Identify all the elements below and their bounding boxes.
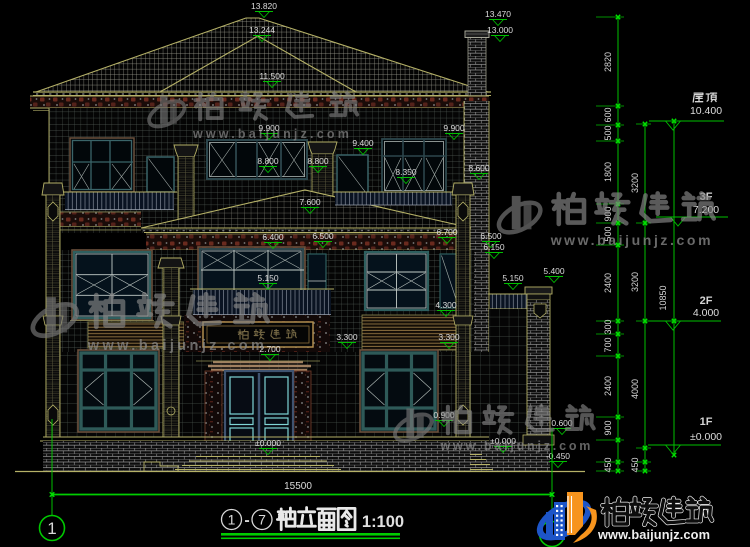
svg-text:±0.000: ±0.000 — [690, 431, 722, 443]
svg-text:7: 7 — [258, 512, 266, 528]
svg-text:450: 450 — [630, 457, 640, 472]
svg-text:4.300: 4.300 — [435, 300, 457, 310]
svg-text:10850: 10850 — [658, 285, 668, 310]
svg-text:5.400: 5.400 — [543, 266, 565, 276]
svg-text:6.500: 6.500 — [480, 231, 502, 241]
svg-text:8.350: 8.350 — [395, 167, 417, 177]
svg-text:1F: 1F — [700, 416, 713, 428]
svg-text:13.820: 13.820 — [251, 1, 277, 11]
svg-text:9.400: 9.400 — [352, 138, 374, 148]
svg-text:-: - — [244, 512, 249, 529]
svg-text:9.900: 9.900 — [443, 123, 465, 133]
svg-text:11.500: 11.500 — [259, 71, 285, 81]
svg-text:www.baijunjz.com: www.baijunjz.com — [550, 232, 713, 248]
svg-text:13.470: 13.470 — [485, 9, 511, 19]
svg-text:2400: 2400 — [603, 376, 613, 396]
svg-text:4.000: 4.000 — [693, 307, 719, 319]
svg-text:500: 500 — [603, 125, 613, 140]
svg-text:www.baijunjz.com: www.baijunjz.com — [597, 527, 710, 542]
svg-text:6.500: 6.500 — [312, 231, 334, 241]
svg-text:1:100: 1:100 — [362, 513, 404, 531]
svg-text:2F: 2F — [700, 295, 713, 307]
svg-text:8.800: 8.800 — [257, 156, 279, 166]
svg-text:7.600: 7.600 — [299, 197, 321, 207]
svg-text:www.baijunjz.com: www.baijunjz.com — [440, 439, 594, 453]
svg-text:0.600: 0.600 — [551, 418, 573, 428]
svg-text:3.300: 3.300 — [438, 332, 460, 342]
svg-text:300: 300 — [603, 319, 613, 334]
svg-text:5.150: 5.150 — [502, 273, 524, 283]
svg-text:www.baijunjz.com: www.baijunjz.com — [87, 338, 268, 354]
svg-text:2820: 2820 — [603, 52, 613, 72]
svg-text:5.150: 5.150 — [257, 273, 279, 283]
svg-text:3200: 3200 — [630, 272, 640, 292]
svg-text:13.244: 13.244 — [249, 25, 275, 35]
svg-text:1: 1 — [228, 512, 236, 528]
svg-text:8.800: 8.800 — [307, 156, 329, 166]
svg-text:2400: 2400 — [603, 273, 613, 293]
svg-text:450: 450 — [603, 457, 613, 472]
svg-text:6.150: 6.150 — [483, 242, 505, 252]
svg-text:3200: 3200 — [630, 173, 640, 193]
svg-text:10.400: 10.400 — [690, 105, 722, 117]
svg-text:900: 900 — [603, 420, 613, 435]
svg-text:4000: 4000 — [630, 379, 640, 399]
svg-text:6.400: 6.400 — [262, 232, 284, 242]
svg-text:6.700: 6.700 — [436, 227, 458, 237]
svg-text:1800: 1800 — [603, 162, 613, 182]
svg-text:15500: 15500 — [284, 481, 312, 492]
svg-text:600: 600 — [603, 107, 613, 122]
svg-text:1: 1 — [47, 519, 56, 538]
svg-text:8.600: 8.600 — [468, 163, 490, 173]
svg-text:700: 700 — [603, 337, 613, 352]
svg-text:13.000: 13.000 — [487, 25, 513, 35]
svg-text:www.baijunjz.com: www.baijunjz.com — [192, 127, 352, 141]
svg-text:3.300: 3.300 — [336, 332, 358, 342]
svg-text:±0.000: ±0.000 — [255, 438, 281, 448]
